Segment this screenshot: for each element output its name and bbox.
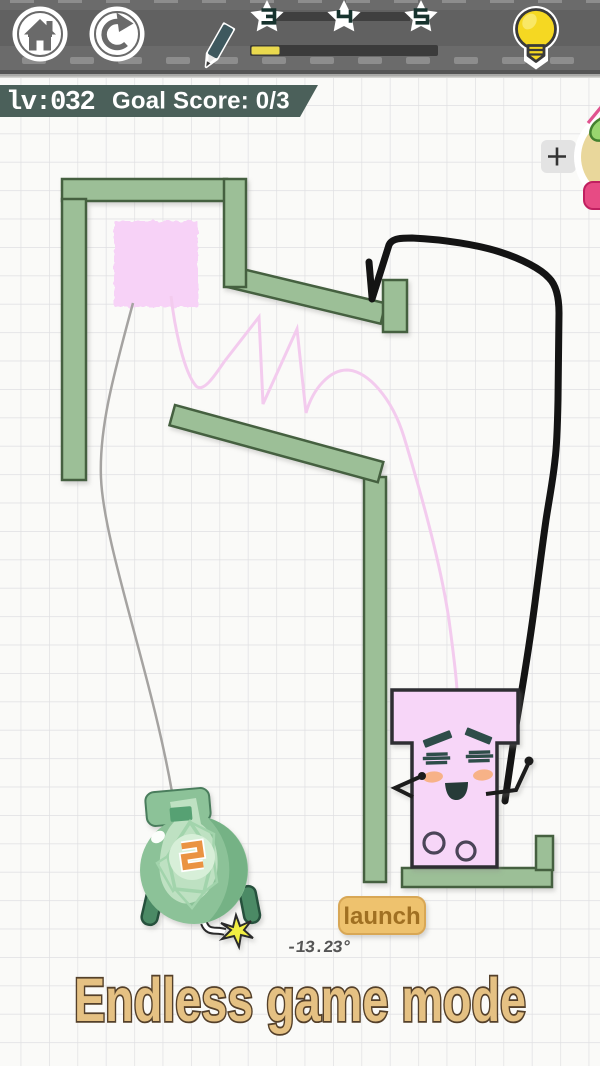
svg-text:-13.23°: -13.23° bbox=[285, 939, 351, 958]
svg-text:Endless game mode: Endless game mode bbox=[74, 966, 526, 1034]
svg-text:Goal Score: 0/3: Goal Score: 0/3 bbox=[112, 88, 290, 115]
svg-text:launch: launch bbox=[343, 903, 420, 930]
svg-text:lv:032: lv:032 bbox=[6, 88, 95, 118]
